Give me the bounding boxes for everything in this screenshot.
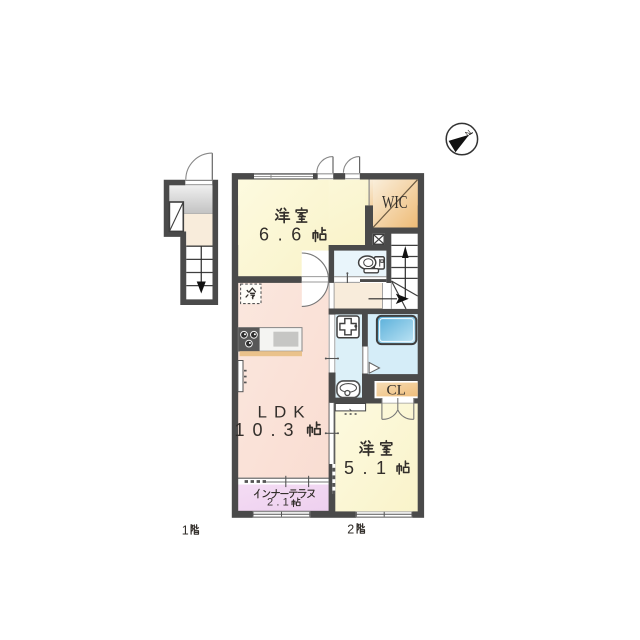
svg-text:1: 1 xyxy=(182,524,189,538)
svg-text:CL: CL xyxy=(387,383,407,399)
svg-text:5.1: 5.1 xyxy=(344,458,395,478)
svg-text:6.6: 6.6 xyxy=(259,225,310,245)
svg-text:10.3: 10.3 xyxy=(235,420,302,440)
svg-text:2: 2 xyxy=(347,523,354,537)
svg-text:2.1: 2.1 xyxy=(267,497,292,509)
svg-text:WIC: WIC xyxy=(382,192,408,212)
svg-text:LDK: LDK xyxy=(258,403,312,422)
